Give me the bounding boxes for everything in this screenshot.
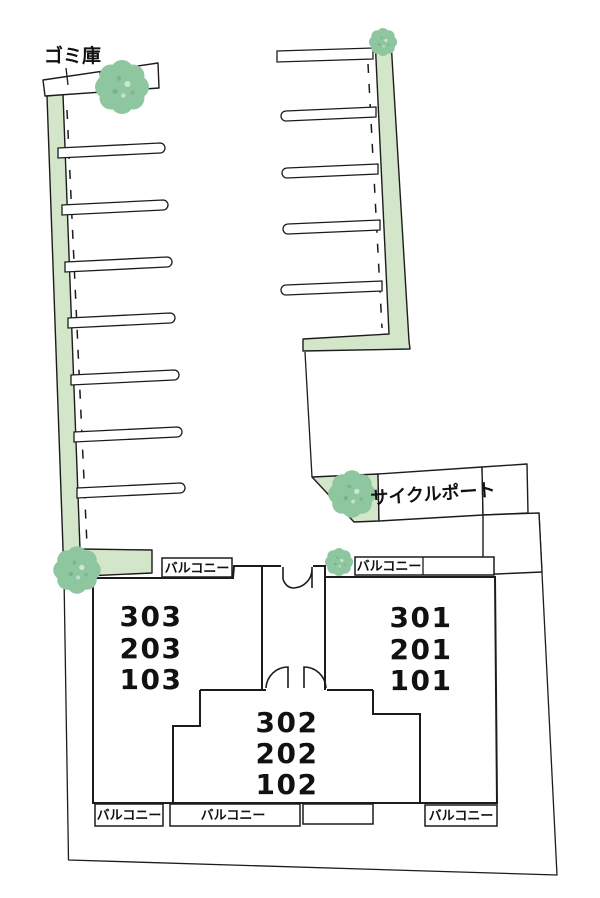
balcony-label: バルコニー [429,809,494,824]
unit-number: 103 [120,663,183,696]
parking-stall [71,370,179,385]
unit-number: 101 [390,664,453,697]
site-boundary-line-east [305,352,312,477]
tree [328,470,376,518]
parking-stall [62,200,168,215]
parking-stall [281,107,376,121]
site-plan-drawing: ゴミ庫 サイクルポート バルコニー バルコニー バルコニー バルコニー バルコニ… [0,0,600,898]
unit-number: 303 [120,600,183,633]
porch-box-south [303,804,373,824]
planting-strip-east [303,38,410,351]
parking-stall [74,427,182,442]
planting-strip-west [47,94,152,577]
unit-number: 302 [256,706,319,739]
tree [53,546,101,594]
parking-stall [281,281,382,295]
balcony-label: バルコニー [97,809,162,824]
parking-stall [77,483,185,498]
unit-number: 102 [256,768,319,801]
unit-numbers-east: 301 201 101 [390,601,453,697]
parking-stall [58,143,165,158]
unit-numbers-west: 303 203 103 [120,600,183,696]
balcony-label: バルコニー [165,562,230,577]
parking-stall [277,48,373,62]
parking-stall [65,257,172,272]
unit-numbers-center: 302 202 102 [256,706,319,801]
unit-number: 202 [256,737,319,770]
site-plan: ゴミ庫 サイクルポート バルコニー バルコニー バルコニー バルコニー バルコニ… [0,0,600,898]
tree [369,28,397,56]
balcony-label: バルコニー [201,809,266,824]
unit-number: 203 [120,632,183,665]
balcony-label: バルコニー [357,560,422,575]
unit-number: 301 [390,601,453,634]
tree [325,548,353,576]
unit-number: 201 [390,633,453,666]
door-opening-north [281,563,313,569]
parking-stall [68,313,175,328]
parking-stall [282,164,378,178]
parking-stalls-east [277,48,382,295]
parking-stall [283,220,380,234]
garbage-storage-label: ゴミ庫 [44,44,101,67]
parking-stalls-west [58,143,185,498]
dashed-lines [67,64,382,545]
tree [95,60,149,114]
